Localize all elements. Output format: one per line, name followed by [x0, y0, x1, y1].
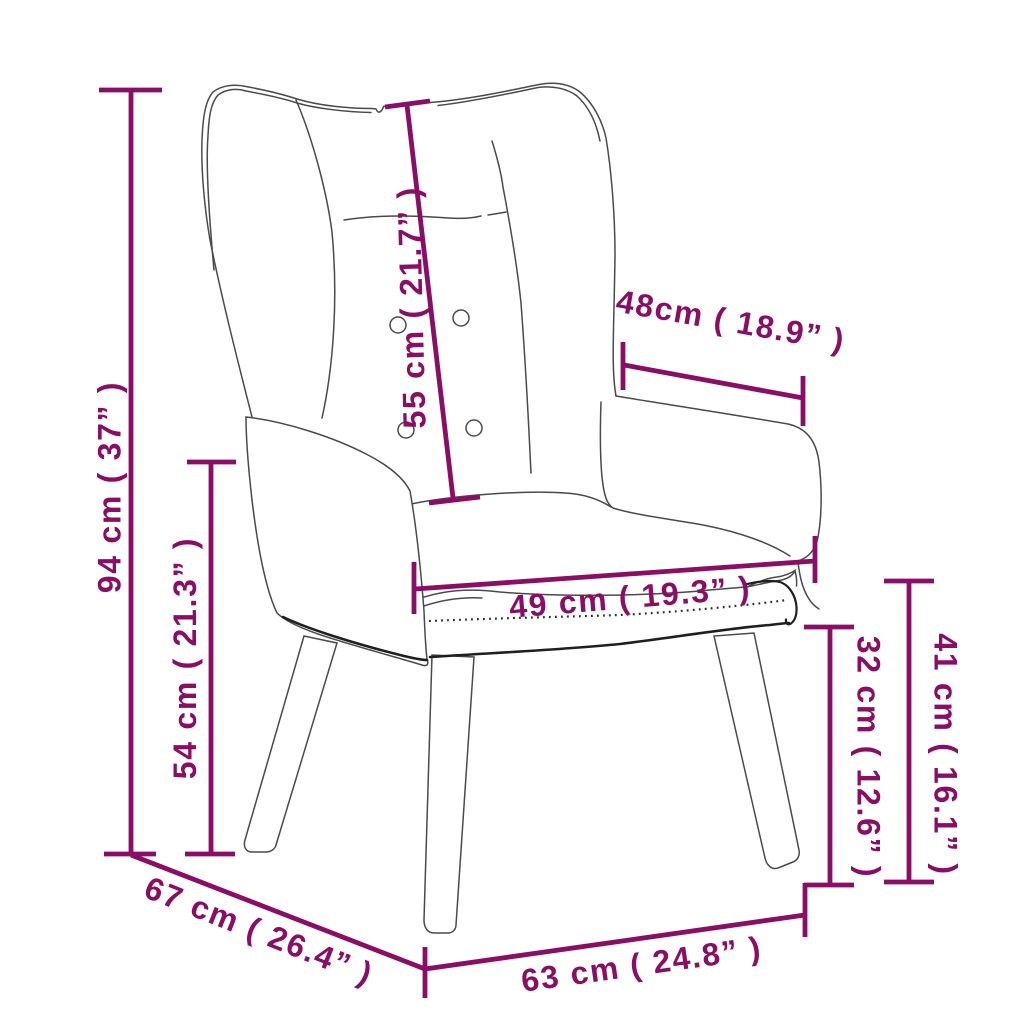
svg-text:55 cm ( 21.7” ): 55 cm ( 21.7” )	[390, 186, 432, 429]
svg-text:41 cm ( 16.1” ): 41 cm ( 16.1” )	[928, 633, 964, 876]
svg-text:54 cm ( 21.3” ): 54 cm ( 21.3” )	[167, 537, 203, 780]
svg-text:32 cm ( 12.6” ): 32 cm ( 12.6” )	[851, 636, 887, 879]
svg-text:94 cm ( 37” ): 94 cm ( 37” )	[92, 381, 128, 593]
